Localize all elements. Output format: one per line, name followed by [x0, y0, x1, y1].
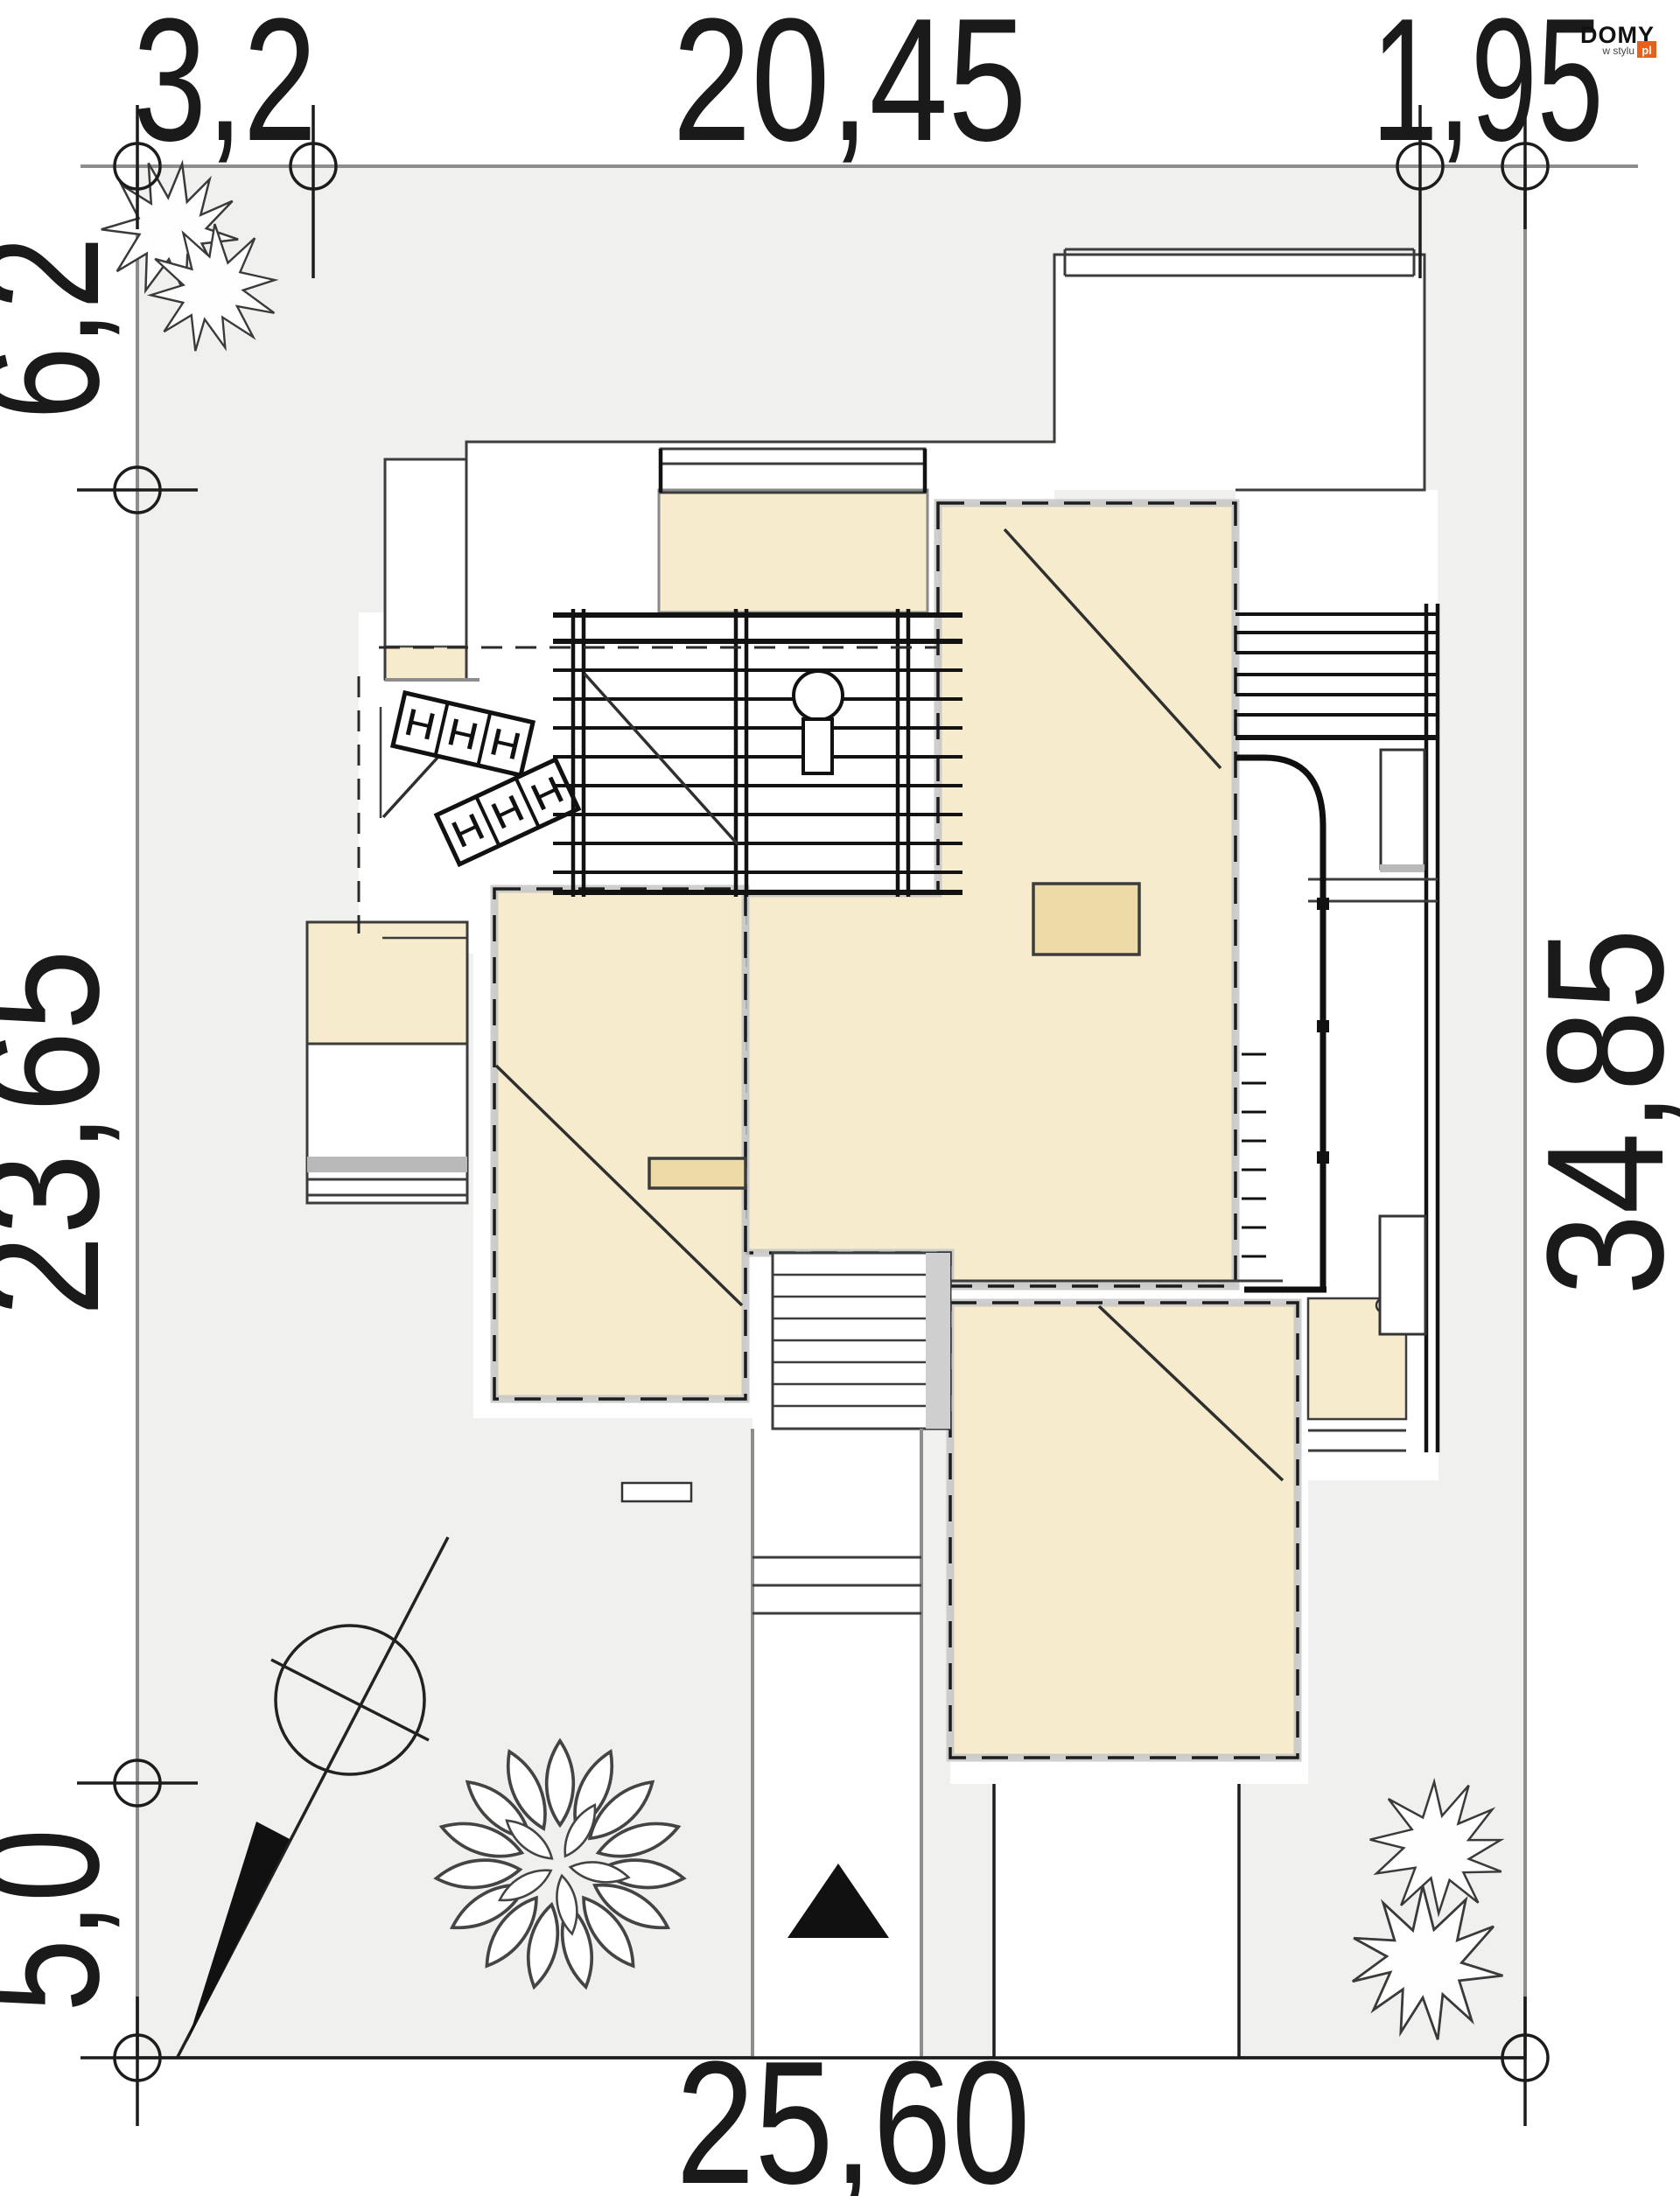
brand-logo-tld: pl — [1641, 44, 1652, 57]
balcony-sill — [1380, 864, 1424, 872]
roof-strip-left — [385, 647, 466, 680]
dim-top-middle: 20,45 — [673, 0, 1027, 178]
stairs — [773, 1253, 950, 1429]
dim-right-full: 34,85 — [1513, 928, 1680, 1296]
site-plan-page: 3,2 20,45 1,95 6,2 23,65 5,0 34,85 25,60… — [0, 0, 1680, 2196]
dome-skylight — [794, 671, 843, 720]
roof-patch-upper — [659, 490, 927, 612]
dim-top-left: 3,2 — [133, 0, 317, 178]
dim-left-lower: 5,0 — [0, 1829, 134, 2012]
bay-roof-left — [307, 922, 467, 1044]
dim-bottom: 25,60 — [676, 2025, 1031, 2196]
dim-left-upper: 6,2 — [0, 236, 134, 420]
chimney — [1033, 884, 1139, 955]
dim-top-right: 1,95 — [1372, 0, 1604, 178]
roof-skylight — [649, 1158, 745, 1188]
balcony-box-lower — [1380, 1216, 1425, 1334]
site-plan-drawing: 3,2 20,45 1,95 6,2 23,65 5,0 34,85 25,60… — [0, 0, 1680, 2196]
bay-window-band — [307, 1157, 467, 1172]
roof-left — [494, 889, 745, 1399]
brand-logo-tagline: w stylu — [1601, 45, 1634, 57]
vent-shaft — [803, 719, 832, 773]
side-step — [622, 1483, 691, 1501]
dim-left-middle: 23,65 — [0, 949, 134, 1317]
balcony-box-upper — [1381, 750, 1424, 869]
